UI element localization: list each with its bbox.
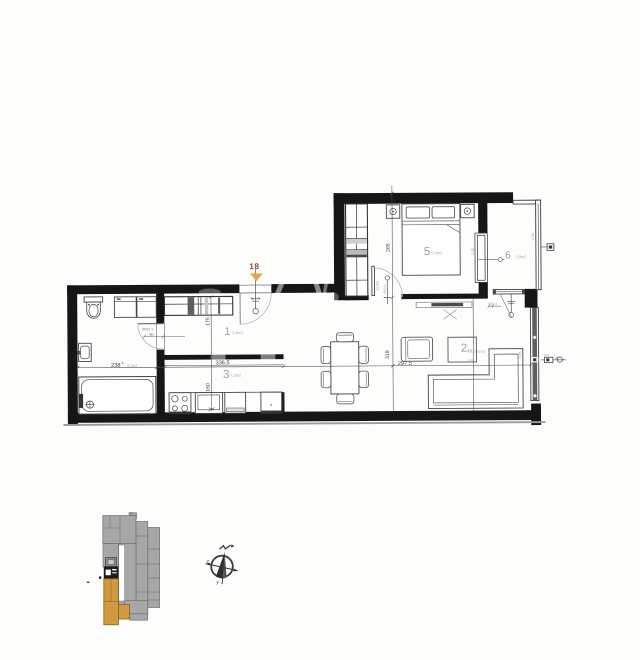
svg-text:3.05: 3.05 [518, 351, 522, 358]
svg-text:160: 160 [205, 383, 211, 392]
svg-text:d: d [270, 402, 272, 407]
svg-text:80/2.1: 80/2.1 [383, 284, 387, 293]
svg-text:y: y [215, 580, 219, 585]
svg-text:1: 1 [224, 326, 230, 338]
svg-text:z: z [206, 558, 210, 563]
svg-text:5: 5 [424, 246, 430, 258]
svg-text:238: 238 [111, 363, 120, 369]
svg-text:7.3m2: 7.3m2 [230, 373, 242, 378]
svg-text:336.5: 336.5 [216, 360, 230, 366]
svg-text:265: 265 [386, 243, 392, 252]
svg-text:90: 90 [149, 333, 153, 337]
svg-text:4: 4 [122, 361, 124, 365]
svg-text:19.305: 19.305 [376, 281, 380, 291]
svg-text:31.5m2: 31.5m2 [472, 349, 486, 354]
svg-text:800/2.1: 800/2.1 [142, 327, 153, 331]
svg-text:175: 175 [205, 317, 211, 326]
svg-text:1.95: 1.95 [531, 233, 535, 240]
svg-text:319: 319 [385, 350, 391, 359]
svg-text:6: 6 [505, 250, 511, 262]
svg-text:180: 180 [128, 511, 134, 515]
svg-text:1.40: 1.40 [471, 248, 475, 255]
svg-text:297.5: 297.5 [398, 361, 412, 367]
svg-text:300: 300 [544, 353, 549, 357]
svg-text:5.8m2: 5.8m2 [232, 330, 244, 335]
svg-text:60/2.2: 60/2.2 [489, 302, 498, 306]
svg-text:18: 18 [249, 261, 259, 271]
svg-text:9.9m2: 9.9m2 [431, 250, 443, 255]
svg-text:3: 3 [223, 369, 229, 381]
svg-text:3.9m2: 3.9m2 [515, 254, 527, 259]
svg-text:315: 315 [468, 359, 474, 363]
svg-text:4.7m2: 4.7m2 [127, 364, 137, 368]
